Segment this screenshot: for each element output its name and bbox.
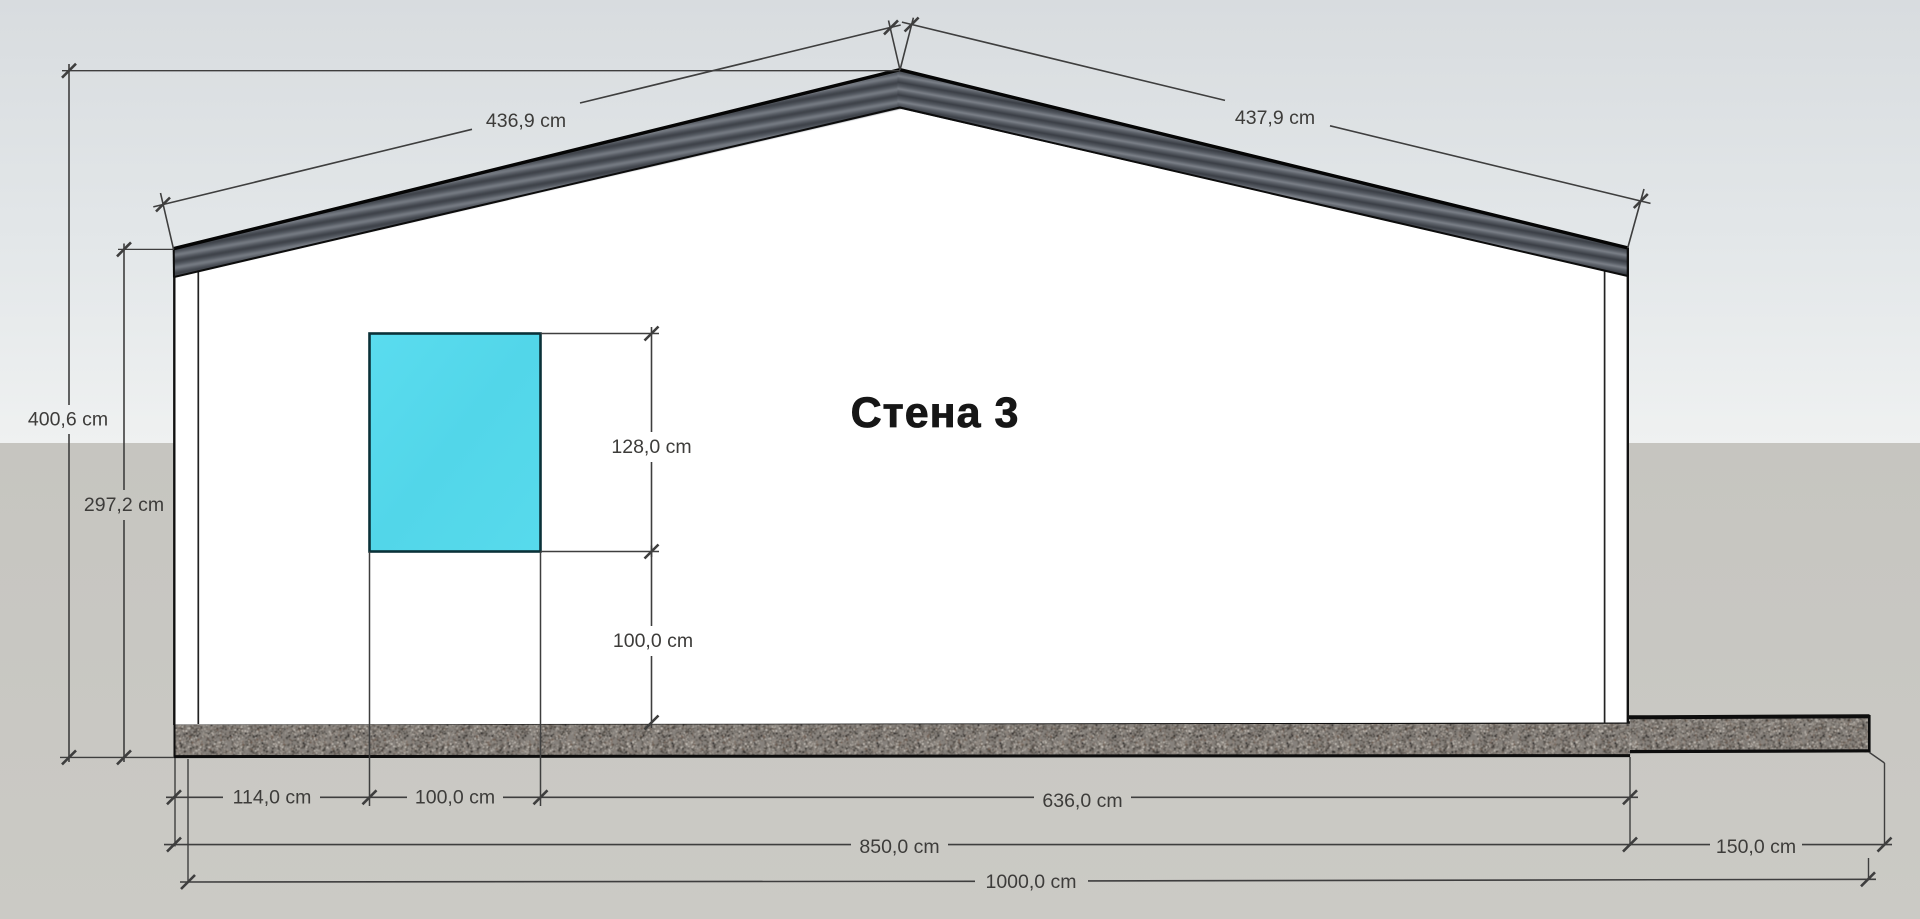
svg-text:436,9 cm: 436,9 cm (486, 110, 566, 132)
svg-text:100,0 cm: 100,0 cm (415, 787, 495, 809)
svg-text:128,0 cm: 128,0 cm (611, 436, 691, 458)
svg-text:1000,0 cm: 1000,0 cm (985, 871, 1076, 893)
svg-text:Стена 3: Стена 3 (851, 389, 1020, 437)
svg-text:150,0 cm: 150,0 cm (1716, 836, 1796, 858)
svg-text:400,6 cm: 400,6 cm (28, 409, 108, 431)
svg-text:850,0 cm: 850,0 cm (859, 836, 939, 858)
svg-text:100,0 cm: 100,0 cm (613, 630, 693, 652)
svg-text:297,2 cm: 297,2 cm (84, 494, 164, 516)
svg-text:636,0 cm: 636,0 cm (1042, 790, 1122, 812)
svg-text:114,0 cm: 114,0 cm (233, 787, 312, 809)
svg-text:437,9 cm: 437,9 cm (1235, 107, 1315, 129)
